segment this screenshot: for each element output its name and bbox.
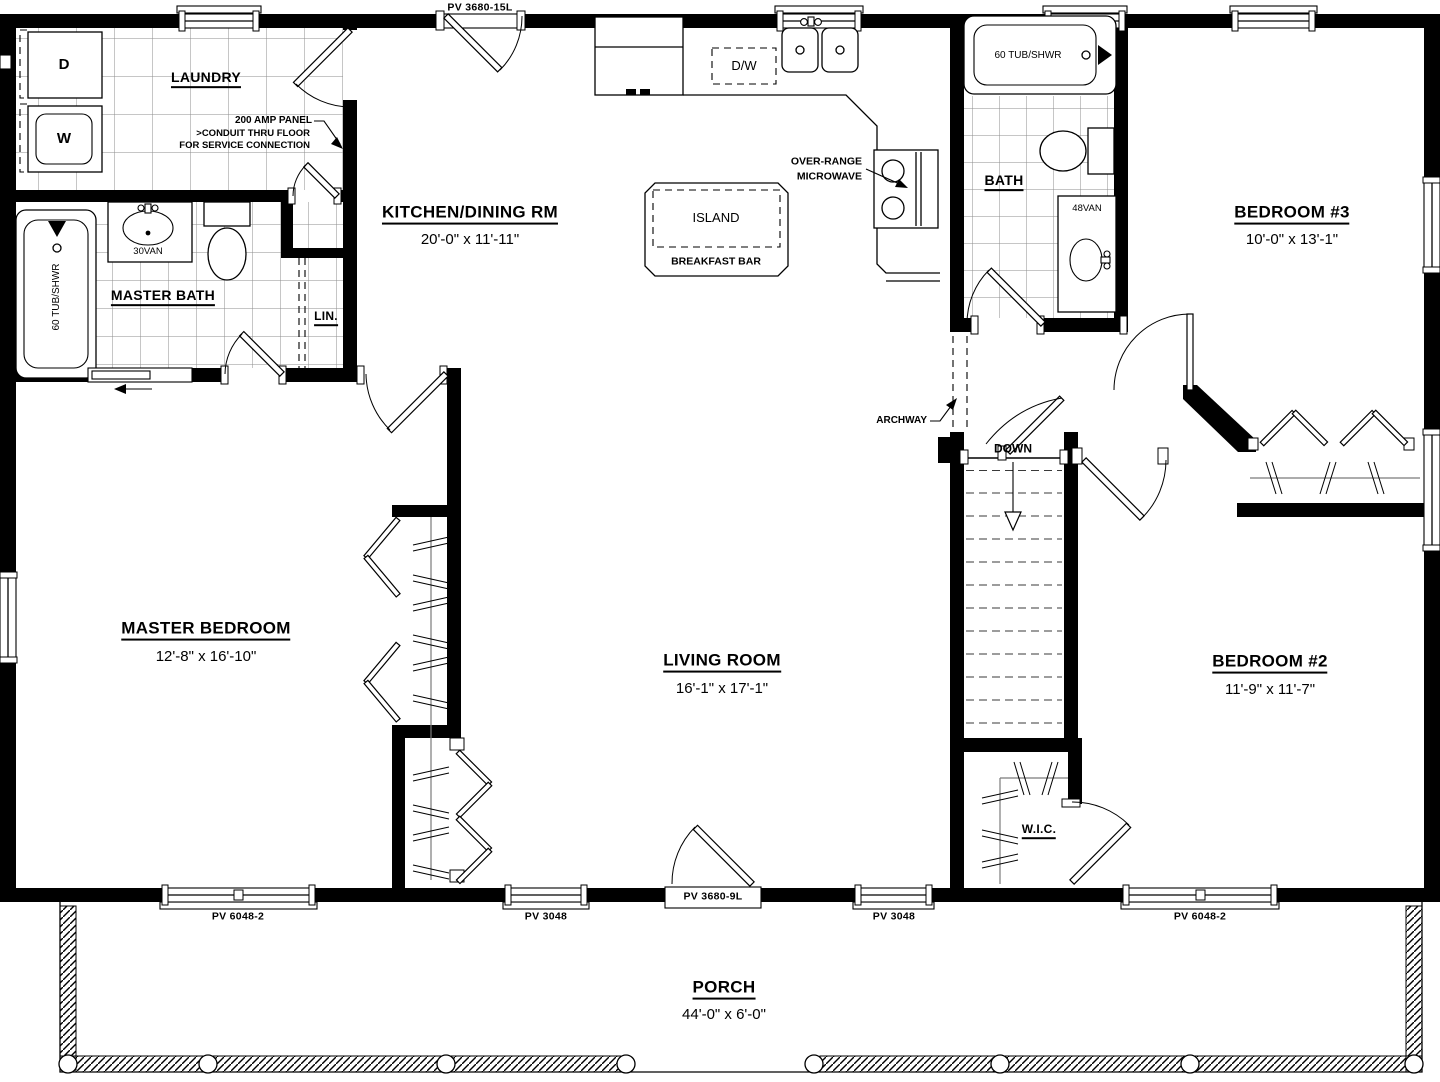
vanity30-label: 30VAN <box>133 247 162 257</box>
rear-door-label: PV 3680-15L <box>447 2 512 13</box>
bath-toilet <box>1040 128 1114 174</box>
room-dims-bedroom2: 11'-9" x 11'-7" <box>1225 682 1315 698</box>
master-toilet <box>204 202 250 280</box>
window-master-bottom <box>160 885 317 909</box>
window-bedroom2-right <box>1423 429 1440 551</box>
room-label-bedroom3: BEDROOM #3 <box>1234 204 1349 225</box>
stairs-down-label: DOWN <box>994 443 1032 456</box>
stairs <box>953 336 1068 723</box>
master-tub-label: 60 TUB/SHWR <box>52 263 63 330</box>
front-door-label: PV 3680-9L <box>683 891 742 902</box>
window-label-right-small: PV 3048 <box>873 911 915 922</box>
range <box>874 150 938 228</box>
floor-plan: LAUNDRY KITCHEN/DINING RM 20'-0" x 11'-1… <box>0 0 1440 1082</box>
window-label-left-large: PV 6048-2 <box>212 911 264 922</box>
window-label-right-large: PV 6048-2 <box>1174 911 1226 922</box>
room-dims-living-room: 16'-1" x 17'-1" <box>676 681 768 697</box>
microwave-note-line1: OVER-RANGE <box>791 156 862 167</box>
vanity48-label: 48VAN <box>1072 204 1101 214</box>
room-dims-porch: 44'-0" x 6'-0" <box>682 1007 766 1023</box>
room-label-linen: LIN. <box>314 310 338 326</box>
window-bedroom3-right <box>1423 177 1440 273</box>
panel-note-line2: >CONDUIT THRU FLOOR <box>196 129 310 139</box>
room-label-kitchen: KITCHEN/DINING RM <box>382 204 558 225</box>
window-living-right-bottom <box>853 885 934 909</box>
window-laundry-top <box>177 6 261 31</box>
microwave-note-line2: MICROWAVE <box>797 171 862 182</box>
room-label-master-bath: MASTER BATH <box>111 288 215 306</box>
room-dims-bedroom3: 10'-0" x 13'-1" <box>1246 232 1338 248</box>
washer-label: W <box>57 131 71 147</box>
window-living-left-bottom <box>503 885 589 909</box>
panel-note-line3: FOR SERVICE CONNECTION <box>179 141 310 151</box>
kitchen-fixtures <box>595 17 940 281</box>
window-bedroom2-bottom <box>1121 885 1279 909</box>
dishwasher-label: D/W <box>731 59 756 73</box>
room-label-porch: PORCH <box>693 979 756 1000</box>
breakfast-bar-label: BREAKFAST BAR <box>671 256 761 267</box>
window-label-left-small: PV 3048 <box>525 911 567 922</box>
window-bedroom3-top <box>1230 6 1317 31</box>
room-dims-master-bedroom: 12'-8" x 16'-10" <box>156 649 257 665</box>
room-dims-kitchen: 20'-0" x 11'-11" <box>421 232 519 248</box>
room-label-wic: W.I.C. <box>1022 823 1056 839</box>
room-label-bath: BATH <box>984 173 1023 191</box>
pocket-door <box>88 368 192 394</box>
room-label-master-bedroom: MASTER BEDROOM <box>121 620 290 641</box>
room-label-bedroom2: BEDROOM #2 <box>1212 653 1327 674</box>
window-master-left <box>0 572 17 663</box>
archway-note: ARCHWAY <box>876 416 927 427</box>
bath-tub-label: 60 TUB/SHWR <box>994 51 1061 62</box>
closets <box>299 258 1420 884</box>
refrigerator <box>595 17 683 95</box>
room-label-laundry: LAUNDRY <box>171 70 241 88</box>
dryer-label: D <box>59 57 70 73</box>
island-label: ISLAND <box>693 211 740 225</box>
room-label-living-room: LIVING ROOM <box>663 652 781 673</box>
panel-note-line1: 200 AMP PANEL <box>235 116 312 127</box>
